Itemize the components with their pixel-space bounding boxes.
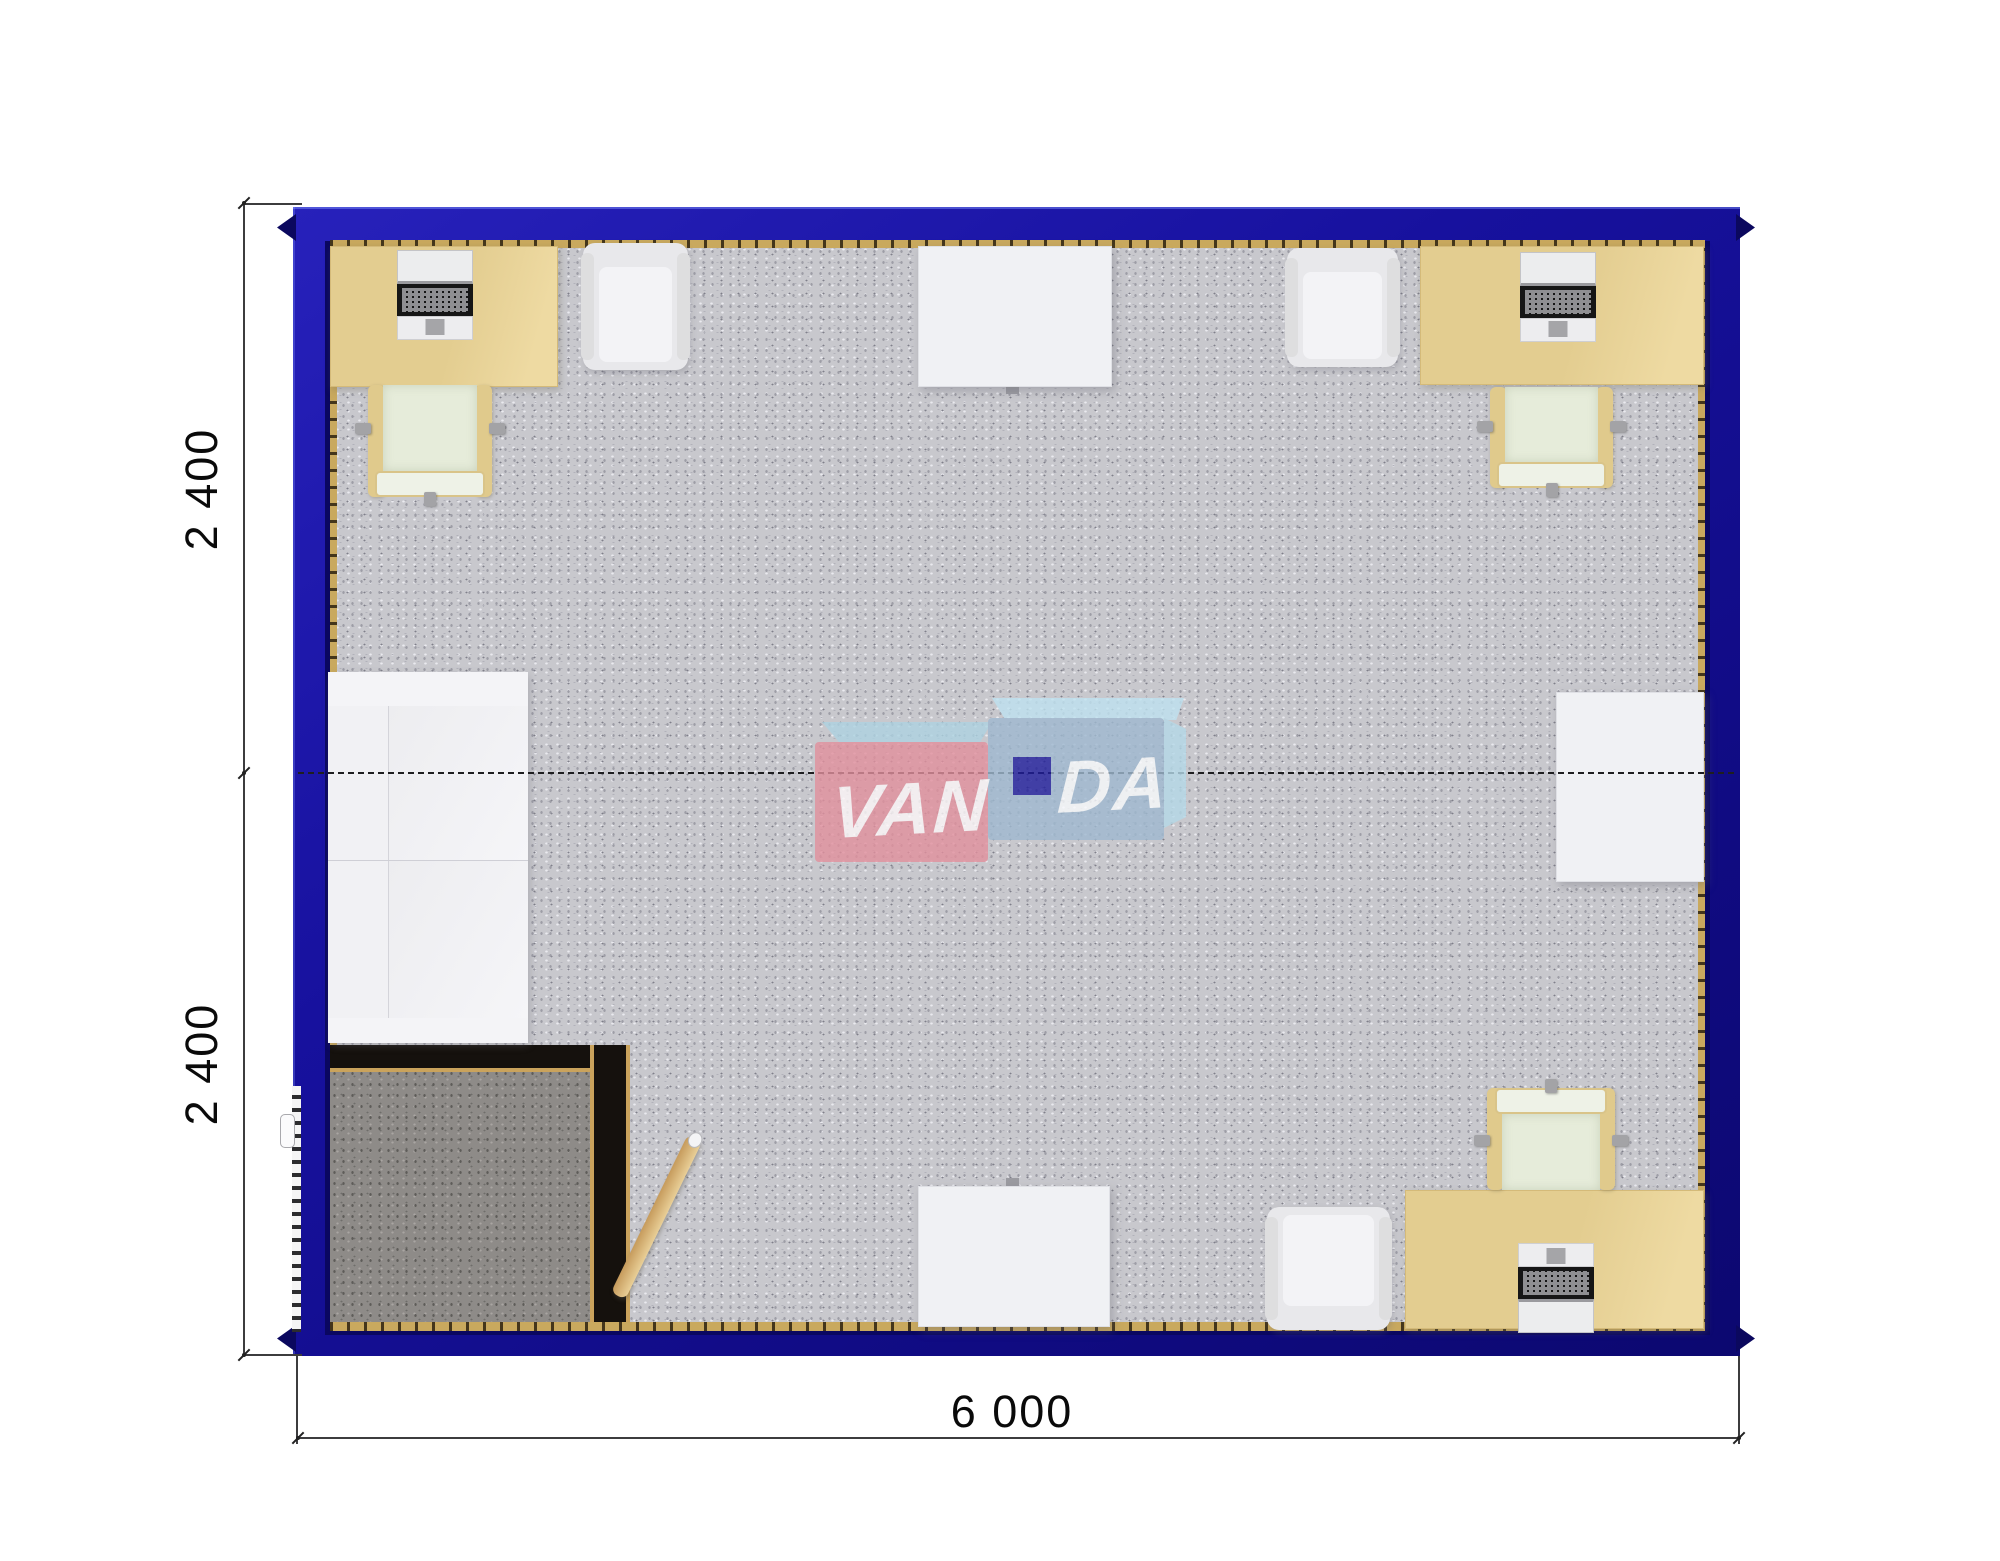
laptop-touchpad — [1547, 1248, 1566, 1264]
dimension-dot — [242, 201, 246, 205]
vestibule-partition-top — [330, 1045, 622, 1072]
laptop-bottom-right — [1518, 1243, 1594, 1333]
laptop-touchpad — [426, 319, 445, 335]
sofa-armrest — [328, 672, 528, 707]
laptop-keyboard — [1520, 286, 1596, 318]
sofa-backrest — [328, 706, 389, 1018]
dimension-label-side-upper: 2 400 — [177, 389, 227, 589]
table-bottom-center — [918, 1186, 1110, 1327]
dimension-dot — [296, 1436, 300, 1440]
office-chair-top-left — [368, 385, 492, 497]
extension-line-bottom-left — [244, 1354, 302, 1356]
laptop-top-right — [1520, 252, 1596, 342]
floor-plan-canvas: VAN DA 2 400 2 400 6 000 — [0, 0, 2000, 1561]
logo-text-da: DA — [1056, 745, 1171, 825]
logo-top-face — [992, 698, 1184, 720]
table-right-wall — [1556, 692, 1704, 882]
table-top-center — [918, 246, 1112, 387]
dimension-label-bottom: 6 000 — [912, 1386, 1112, 1438]
laptop-screen — [397, 250, 473, 284]
logo-text-van: VAN — [830, 768, 991, 850]
laptop-top-left — [397, 250, 473, 340]
dimension-dot — [242, 1353, 246, 1357]
laptop-base — [1520, 318, 1596, 342]
armchair-top-right — [1287, 248, 1398, 367]
sofa-cushion — [389, 706, 528, 860]
logo-top-face — [822, 722, 992, 742]
office-chair-bottom-right — [1487, 1088, 1615, 1190]
sofa-armrest — [328, 1017, 528, 1043]
dimension-dot — [242, 771, 246, 775]
extension-line-bottom-left-drop — [296, 1356, 298, 1444]
sofa-cushion — [389, 861, 528, 1018]
office-chair-top-right — [1490, 387, 1613, 488]
extension-line-bottom-right-drop — [1738, 1356, 1740, 1444]
extension-line-top-left — [244, 203, 302, 205]
dimension-line-left-vertical — [243, 202, 245, 1356]
logo-blue-square — [1013, 757, 1051, 795]
laptop-base — [1518, 1243, 1594, 1267]
vanda-watermark-logo: VAN DA — [800, 690, 1190, 880]
armchair-top-left — [583, 243, 688, 370]
corner-casting-top-right — [1736, 214, 1755, 241]
sofa-left — [328, 672, 528, 1043]
corner-casting-top-left — [277, 214, 296, 241]
laptop-base — [397, 316, 473, 340]
dimension-dot — [1737, 1436, 1741, 1440]
corner-casting-bottom-right — [1736, 1325, 1755, 1352]
armchair-bottom — [1267, 1207, 1390, 1330]
dimension-label-side-lower: 2 400 — [177, 964, 227, 1164]
laptop-touchpad — [1549, 321, 1568, 337]
laptop-keyboard — [1518, 1267, 1594, 1299]
laptop-keyboard — [397, 284, 473, 316]
laptop-screen — [1520, 252, 1596, 286]
laptop-screen — [1518, 1299, 1594, 1333]
exterior-door-handle — [280, 1114, 295, 1148]
entry-vestibule-mat — [330, 1068, 590, 1322]
